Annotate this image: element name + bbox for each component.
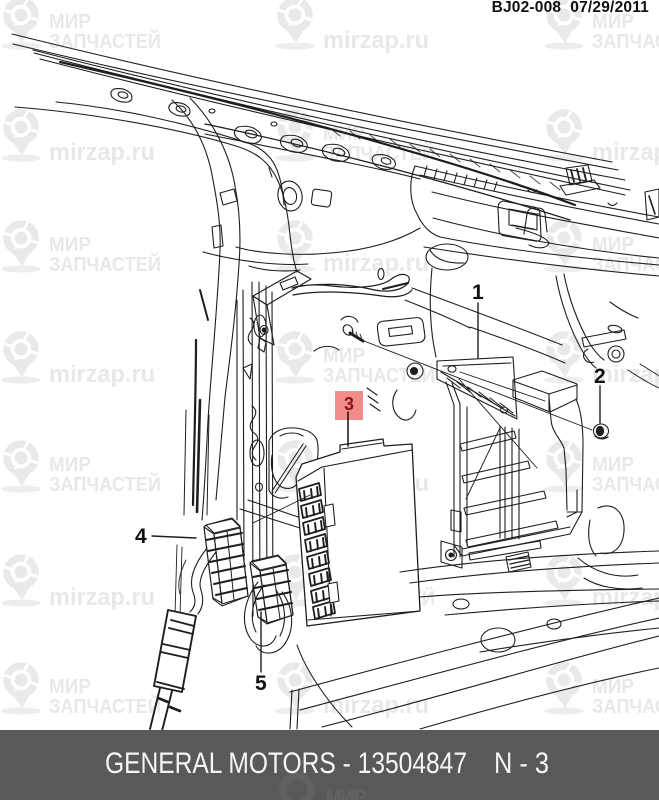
svg-text:1: 1 [472,281,484,304]
svg-text:5: 5 [255,672,267,695]
svg-text:3: 3 [344,394,354,414]
svg-text:2: 2 [594,365,606,388]
svg-text:GENERAL MOTORS - 13504847: GENERAL MOTORS - 13504847 [105,747,467,780]
svg-text:МИР: МИР [325,786,367,800]
svg-text:N - 3: N - 3 [494,747,549,780]
svg-text:4: 4 [135,525,147,548]
